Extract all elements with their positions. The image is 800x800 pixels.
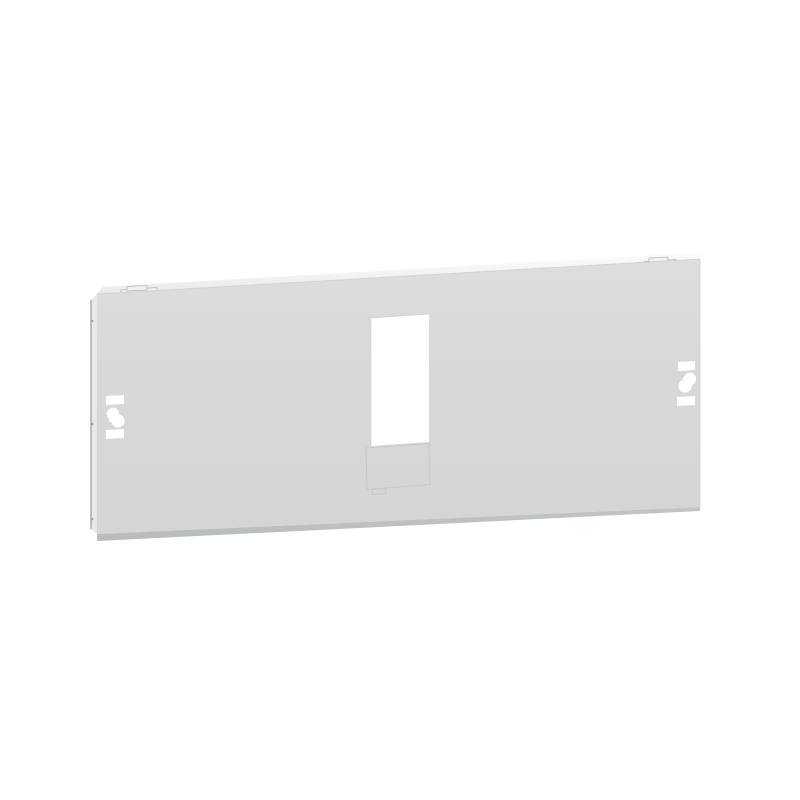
- fastener-slot-right-bottom: [677, 396, 695, 406]
- rivet: [91, 518, 94, 521]
- central-cutout: [371, 314, 429, 446]
- product-photo-canvas: Product photo: light grey rectangular el…: [0, 0, 800, 800]
- fastener-slot-left-top: [106, 395, 124, 405]
- panel-left-edge: [91, 294, 97, 534]
- front-plate-product-image: Product photo: light grey rectangular el…: [0, 0, 800, 800]
- fastener-slot-right-top: [678, 361, 695, 371]
- fastener-group-right: [677, 361, 696, 406]
- rivet: [91, 320, 94, 323]
- rivet: [91, 423, 94, 426]
- panel-left-edge-face: [91, 294, 97, 534]
- fastener-group-left: [106, 395, 125, 439]
- fastener-slot-left-bottom: [106, 429, 124, 439]
- top-clip-left-tab: [127, 286, 147, 292]
- central-cutout-hole: [371, 314, 429, 446]
